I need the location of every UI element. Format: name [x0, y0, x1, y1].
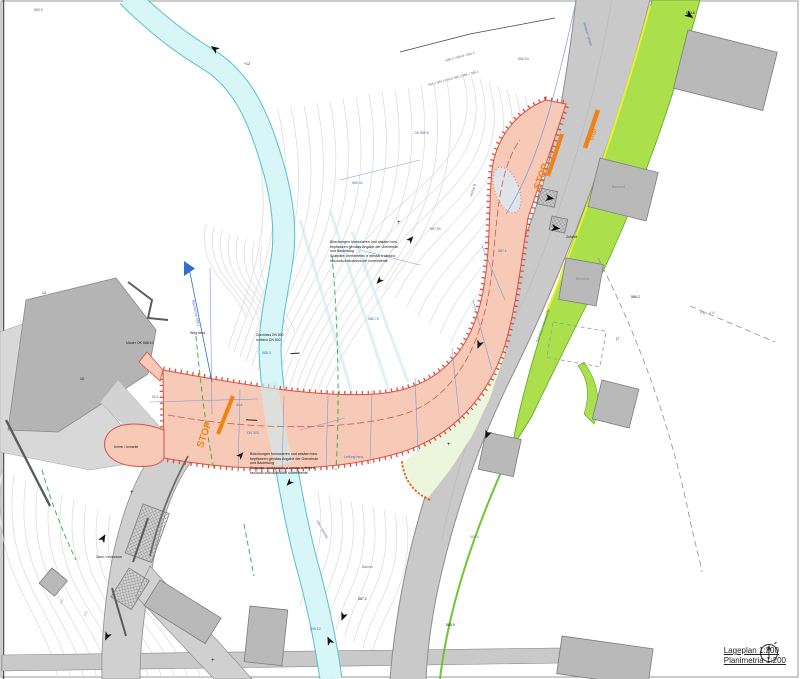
fence-line: [400, 18, 555, 52]
scale-label-it: Planimetria 1:200: [724, 656, 786, 665]
site-plan-sheet: Böschungen humusieren und ansäen bzw. be…: [0, 0, 800, 679]
main-road: [390, 0, 650, 679]
new-road-alignment: [105, 100, 566, 469]
title-block: Lageplan 1:200 Planimetria 1:200: [724, 646, 786, 665]
hairpin-bulb: [105, 424, 164, 466]
survey-flag-marker: [184, 261, 212, 382]
lower-access-road: [102, 438, 252, 679]
site-plan-canvas: [0, 0, 800, 679]
scale-label-de: Lageplan 1:200: [724, 646, 786, 655]
